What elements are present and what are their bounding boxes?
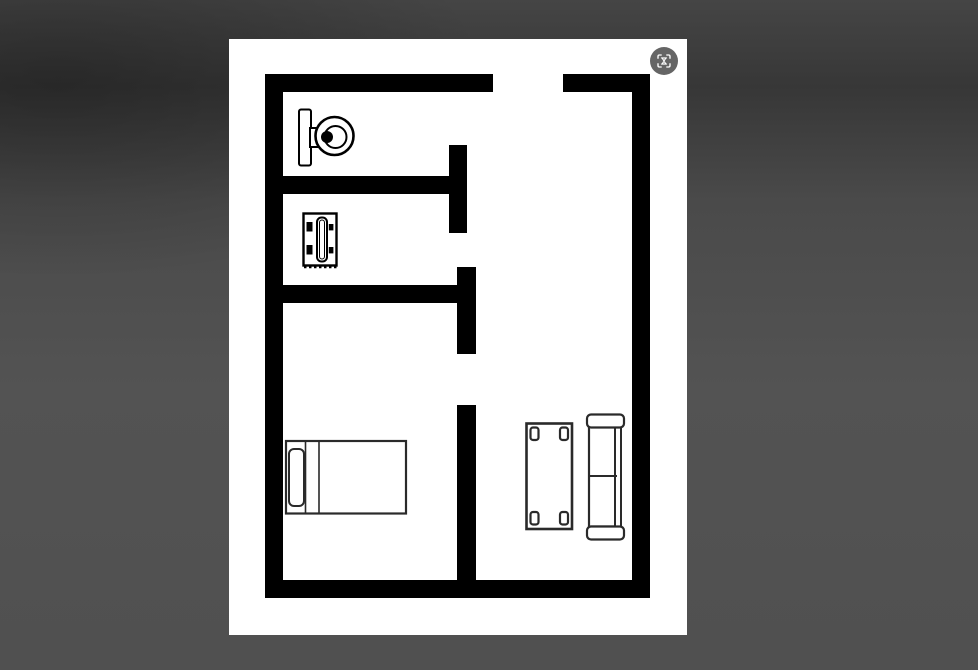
wall-central — [457, 405, 476, 580]
viewfinder-corner-tr — [667, 55, 670, 58]
small-table-icon — [304, 214, 338, 268]
wall-interior-1 — [283, 176, 449, 194]
floor-plan-drawing — [229, 39, 687, 635]
table-chair-right-2 — [329, 247, 334, 253]
toilet-icon — [299, 110, 354, 166]
wall-stub-1 — [449, 145, 467, 233]
coffee-table-icon — [527, 424, 573, 530]
coffee-table-leg-br — [560, 512, 568, 525]
bed-icon — [286, 441, 406, 514]
bed-pillow — [289, 449, 304, 506]
sofa-armrest-top — [587, 415, 624, 428]
viewfinder-corner-bl — [658, 64, 661, 67]
wall-right — [632, 74, 650, 598]
wall-interior-2 — [283, 285, 457, 303]
wall-left — [265, 74, 283, 598]
table-chair-right-1 — [329, 224, 334, 230]
coffee-table-leg-tl — [531, 428, 539, 441]
floor-plan-image[interactable] — [229, 39, 687, 635]
table-top-inner — [320, 220, 325, 259]
wall-bottom — [265, 580, 650, 598]
visual-search-button[interactable] — [650, 47, 678, 75]
coffee-table-leg-bl — [531, 512, 539, 525]
wall-stub-2 — [457, 267, 476, 354]
coffee-table-leg-tr — [560, 428, 568, 441]
wall-top-left — [265, 74, 493, 92]
hourglass-glyph — [661, 58, 666, 64]
table-chair-left-2 — [307, 245, 313, 255]
sofa-armrest-bottom — [587, 527, 624, 540]
sofa-icon — [587, 415, 624, 540]
viewfinder-corner-br — [667, 64, 670, 67]
visual-search-icon — [656, 53, 672, 69]
toilet-drain-dot — [321, 131, 333, 143]
table-chair-left-1 — [307, 222, 313, 232]
viewfinder-corner-tl — [658, 55, 661, 58]
image-viewer-backdrop — [0, 0, 978, 670]
